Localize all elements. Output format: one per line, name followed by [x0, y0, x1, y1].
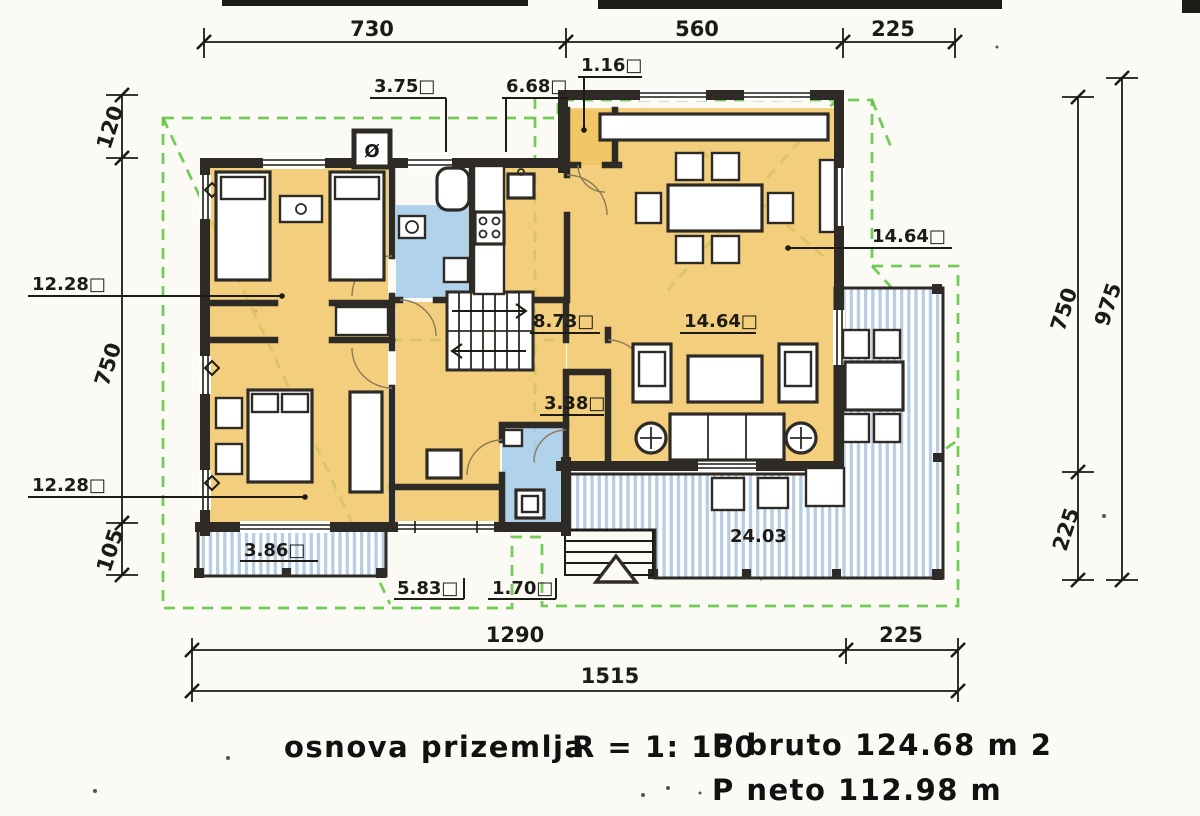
sofa — [670, 414, 784, 460]
area-label-living: 14.64□ — [684, 311, 758, 332]
terrace-chair — [874, 414, 900, 442]
area-label-kitchen: 6.68□ — [506, 76, 567, 97]
bathtub — [437, 168, 469, 210]
dim-bottom-2: 225 — [879, 623, 923, 647]
bed-double — [248, 390, 312, 482]
dim-right-inner-1: 750 — [1046, 285, 1082, 334]
chair — [676, 236, 703, 263]
plan-net-area: P neto 112.98 m — [712, 773, 1002, 807]
chair — [712, 153, 739, 180]
title-block: osnova prizemlja R = 1: 150 P bruto 124.… — [284, 728, 1052, 807]
window — [640, 89, 706, 101]
window — [263, 156, 325, 169]
dim-bottom-1: 1290 — [486, 623, 544, 647]
window-bay — [398, 521, 494, 533]
dim-left-2: 750 — [90, 340, 126, 389]
wc-toilet — [516, 490, 544, 518]
terrace-chair — [806, 468, 844, 506]
toilet — [444, 258, 468, 282]
plan-gross-area: P bruto 124.68 m 2 — [712, 728, 1052, 762]
side-table-round — [786, 423, 816, 453]
chair — [636, 193, 661, 223]
terrace-glass-door — [698, 460, 756, 472]
terrace-chair — [843, 330, 869, 358]
area-label-porch: 5.83□ — [397, 578, 458, 599]
sideboard — [600, 114, 828, 140]
terrace-chair — [712, 478, 744, 510]
wc-basin — [504, 430, 522, 446]
window — [240, 521, 330, 533]
nightstand — [216, 398, 242, 428]
scanned-floor-plan-page: Ø — [0, 0, 1200, 816]
chair — [768, 193, 793, 223]
area-label-dining: 14.64□ — [872, 226, 946, 247]
armchair — [779, 344, 817, 402]
stove — [475, 212, 504, 244]
terrace-chair — [843, 414, 869, 442]
armchair — [633, 344, 671, 402]
side-table-round — [636, 423, 666, 453]
bed-single — [330, 172, 384, 280]
window — [744, 89, 810, 101]
area-label-terrace-left: 3.86□ — [244, 540, 305, 561]
coffee-table — [688, 356, 762, 402]
washbasin — [399, 216, 425, 238]
corridor-closet — [336, 307, 388, 335]
entrance-marker-triangle — [596, 556, 636, 582]
dim-top-2: 560 — [675, 17, 719, 41]
area-label-entry: 1.70□ — [492, 578, 553, 599]
window — [199, 175, 211, 219]
window — [199, 470, 211, 510]
bed-single — [216, 172, 270, 280]
area-label-bedroom-top: 12.28□ — [32, 274, 106, 295]
hall-cabinet — [427, 450, 461, 478]
terrace-chair — [874, 330, 900, 358]
dim-top-1: 730 — [350, 17, 394, 41]
chimney-glyph: Ø — [364, 141, 379, 162]
chimney-symbol: Ø — [354, 131, 390, 167]
nightstand — [280, 196, 322, 222]
entry-steps — [565, 530, 653, 582]
area-label-bedroom-bottom: 12.28□ — [32, 475, 106, 496]
chair — [712, 236, 739, 263]
dim-right-outer: 975 — [1090, 280, 1126, 329]
area-label-terrace-main: 24.03 — [730, 526, 787, 547]
dim-bottom-total: 1515 — [581, 664, 639, 688]
nightstand — [216, 444, 242, 474]
terrace-table — [845, 362, 903, 410]
dim-top-3: 225 — [871, 17, 915, 41]
area-label-corridor: 3.38□ — [544, 393, 605, 414]
dresser — [350, 392, 382, 492]
area-label-pantry: 1.16□ — [581, 55, 642, 76]
terrace-chair — [758, 478, 788, 508]
dining-counter — [820, 160, 835, 232]
window — [199, 356, 211, 394]
kitchen-sink — [508, 169, 534, 198]
area-label-bath: 3.75□ — [374, 76, 435, 97]
plan-title: osnova prizemlja — [284, 730, 586, 764]
dining-table — [668, 185, 762, 231]
staircase — [447, 292, 533, 370]
floor-plan-drawing: Ø — [0, 0, 1200, 816]
area-label-stair-hall: 8.73□ — [533, 311, 594, 332]
chair — [676, 153, 703, 180]
